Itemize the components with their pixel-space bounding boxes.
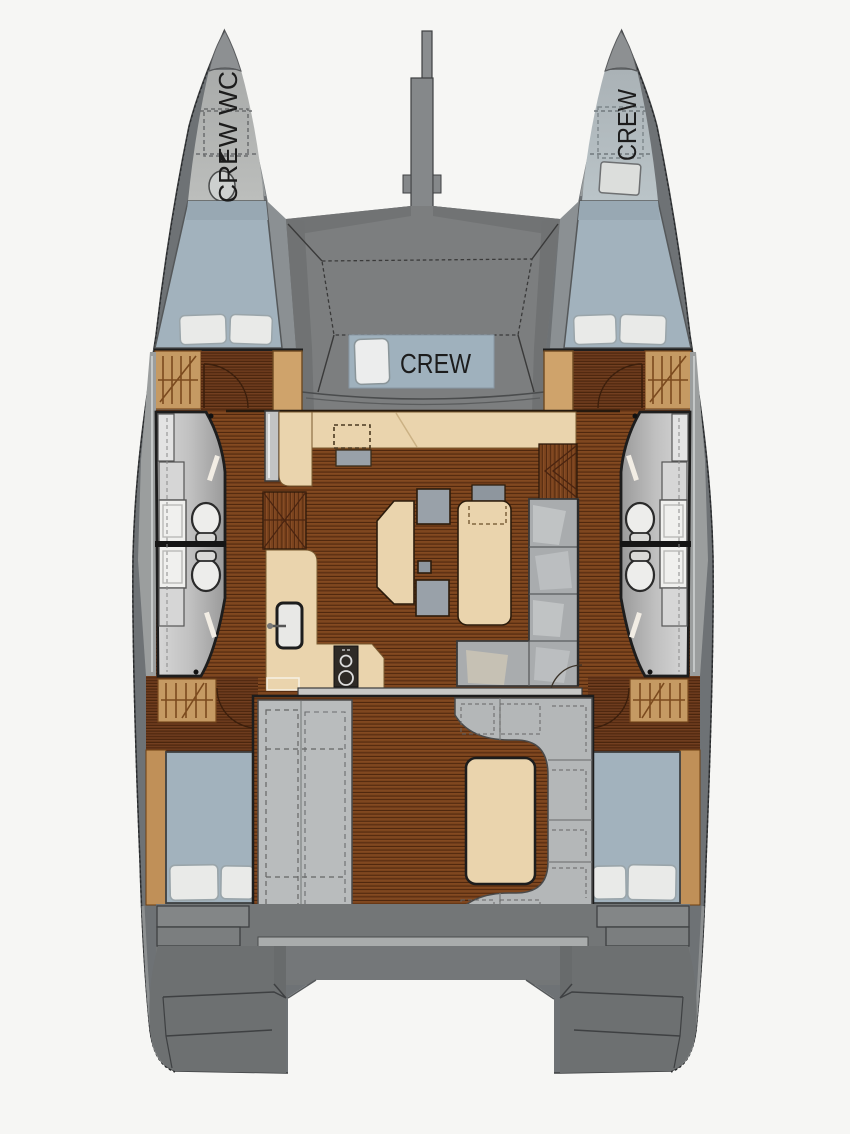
svg-text:CREW WC: CREW WC	[213, 71, 243, 203]
svg-text:CREW: CREW	[612, 89, 642, 161]
svg-text:CREW: CREW	[400, 348, 471, 379]
